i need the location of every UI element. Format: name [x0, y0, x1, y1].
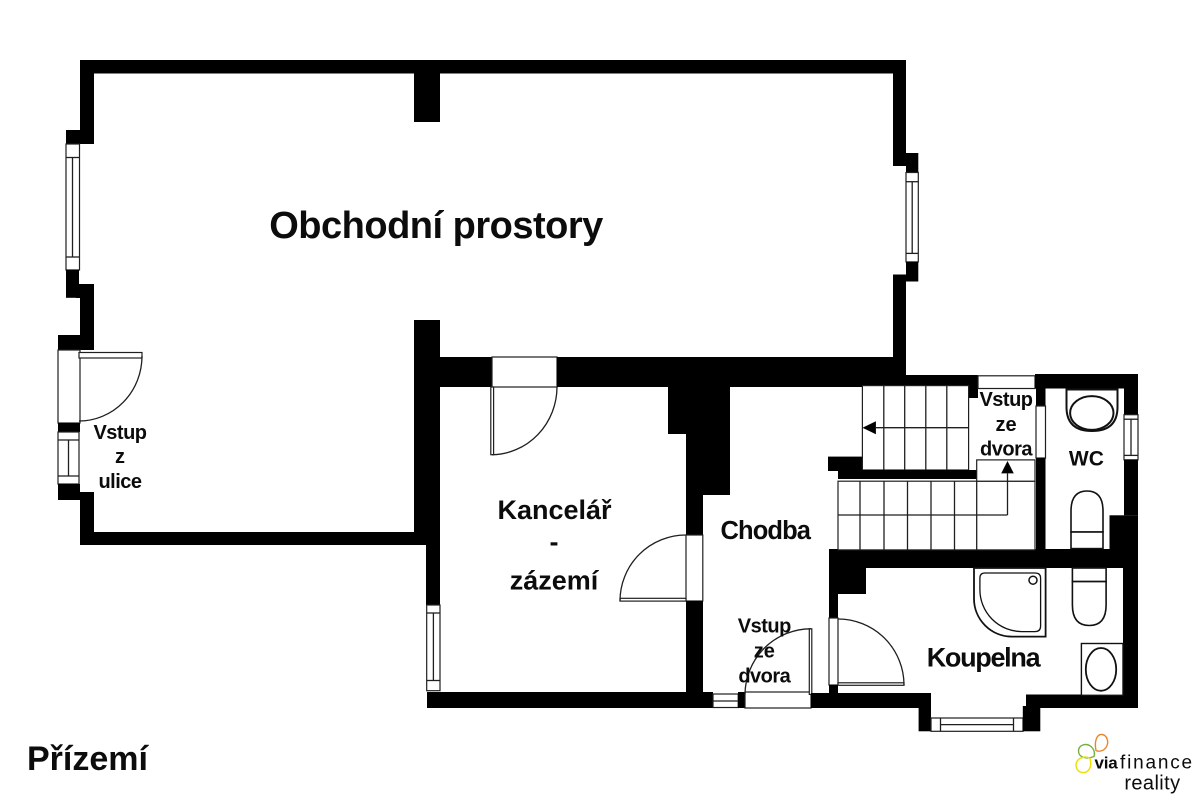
- svg-text:-: -: [550, 527, 559, 557]
- svg-text:Obchodní prostory: Obchodní prostory: [269, 205, 603, 247]
- svg-text:Koupelna: Koupelna: [927, 643, 1042, 673]
- svg-text:Vstup: Vstup: [979, 389, 1032, 411]
- svg-text:dvora: dvora: [738, 666, 791, 688]
- svg-text:reality: reality: [1124, 772, 1180, 794]
- svg-text:Vstup: Vstup: [93, 422, 146, 444]
- svg-text:dvora: dvora: [980, 439, 1033, 461]
- svg-text:ulice: ulice: [98, 471, 141, 493]
- svg-text:Kancelář: Kancelář: [497, 495, 612, 525]
- svg-text:ze: ze: [754, 641, 775, 663]
- svg-text:zázemí: zázemí: [510, 566, 600, 596]
- svg-text:via: via: [1095, 754, 1119, 773]
- svg-text:WC: WC: [1069, 447, 1104, 470]
- svg-text:Vstup: Vstup: [738, 616, 791, 638]
- svg-text:Chodba: Chodba: [721, 517, 812, 545]
- svg-text:Přízemí: Přízemí: [27, 740, 149, 778]
- svg-text:z: z: [115, 446, 125, 468]
- svg-text:ze: ze: [995, 414, 1016, 436]
- svg-text:finance: finance: [1120, 753, 1194, 774]
